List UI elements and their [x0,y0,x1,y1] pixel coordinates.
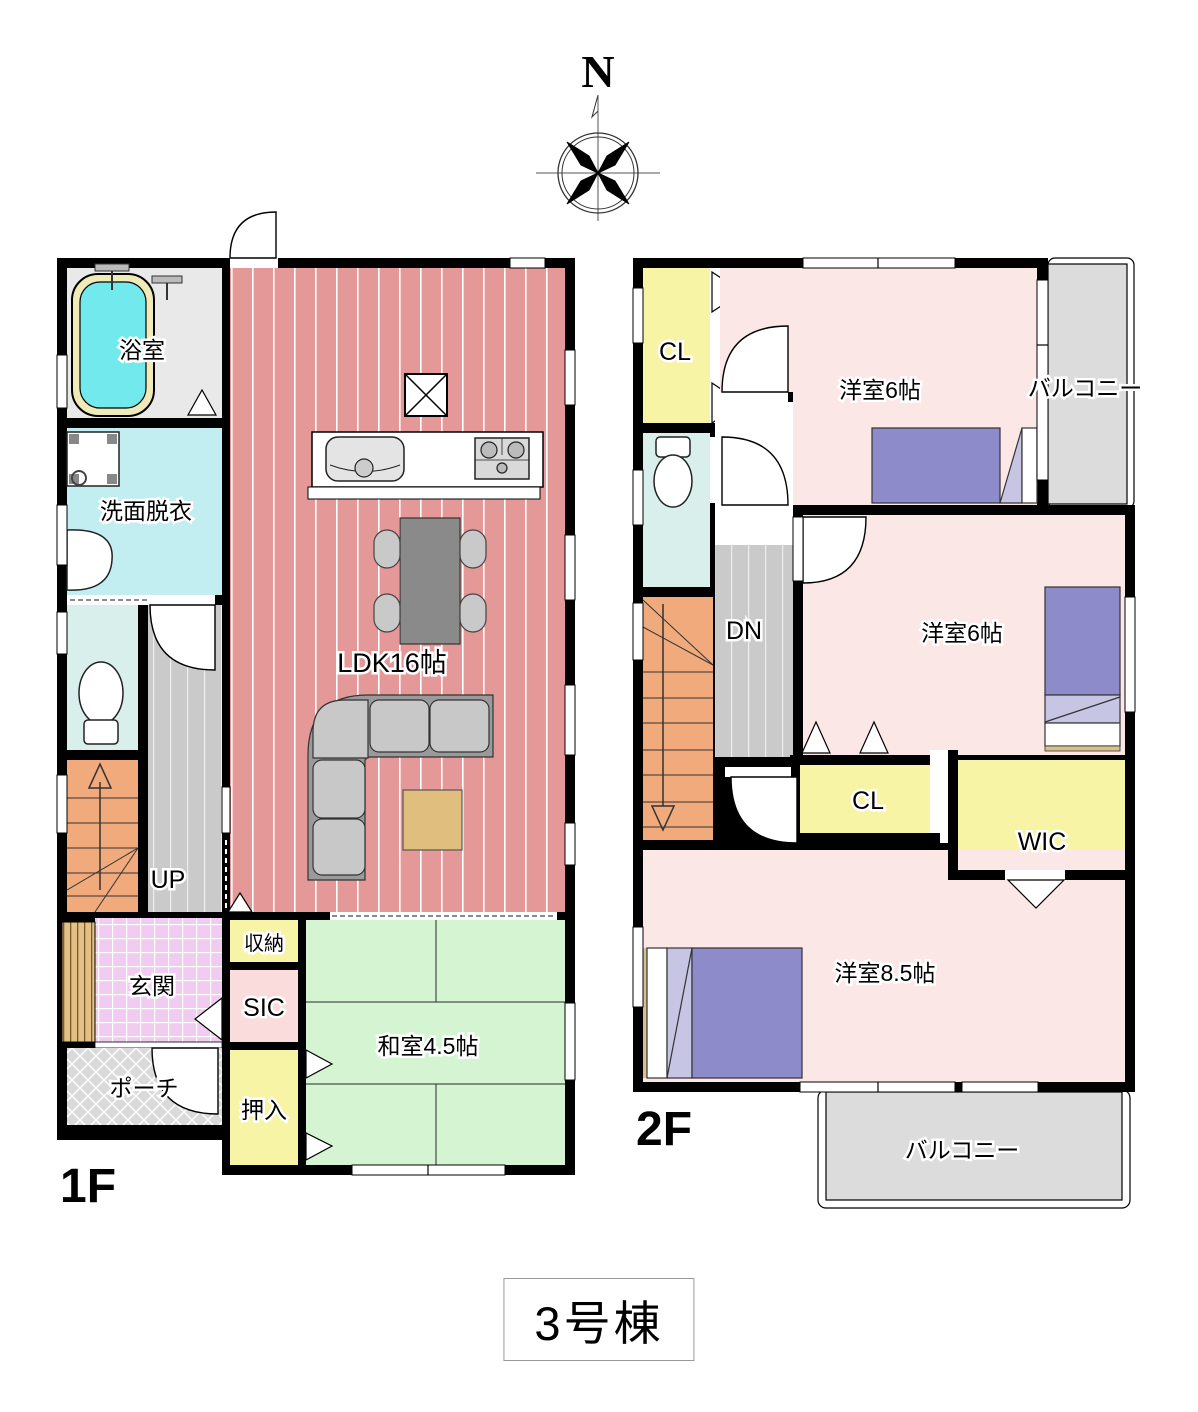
label-dn: DN [726,617,762,645]
label-tatami: 和室4.5帖 [378,1033,479,1059]
washing-machine-icon [67,432,119,486]
room-toilet1 [67,605,138,750]
room-ldk [228,212,565,920]
toilet-icon [654,437,692,507]
room-toilet2 [643,433,710,587]
stairs-up [67,760,138,912]
label-wic: WIC [1018,828,1067,856]
floor2-plan: CL 洋室6帖 バルコニー DN 洋室6帖 CL WIC 洋室8.5帖 バルコニ… [615,200,1198,1220]
bed [1045,587,1120,751]
label-bedroom2: 洋室6帖 [921,620,1003,646]
building-title: 3号棟 [503,1278,694,1361]
label-bedroom1: 洋室6帖 [839,377,921,403]
compass-icon: N [528,45,668,225]
label-storage: 収納 [244,932,284,955]
dining-table [400,518,460,644]
label-balcony2: バルコニー [905,1137,1020,1163]
living-table [403,790,462,850]
label-bedroom3: 洋室8.5帖 [835,960,936,986]
label-floor1: 1F [60,1160,116,1213]
label-sic: SIC [243,994,285,1022]
label-oshiire: 押入 [241,1097,287,1123]
kitchen-counter [308,432,543,499]
shoe-cabinet [62,922,95,1042]
label-closet2: CL [852,787,884,815]
label-bath: 浴室 [119,337,165,363]
label-genkan: 玄関 [129,973,175,999]
faucet-icon [95,264,129,271]
label-balcony1: バルコニー [1028,375,1143,401]
shower-icon [152,276,182,283]
refrigerator-space-icon [405,374,447,416]
label-porch: ポーチ [110,1075,179,1101]
stairs-down [643,597,713,840]
floor1-plan: 浴室 洗面脱衣 LDK16帖 UP 収納 SIC 玄関 ポーチ 和室4.5帖 押… [50,200,590,1220]
label-ldk: LDK16帖 [337,648,447,678]
label-up: UP [151,866,186,894]
label-washroom: 洗面脱衣 [100,498,192,524]
toilet-icon [79,662,123,744]
label-closet1: CL [659,338,691,366]
stove-icon [475,438,529,479]
compass-north-label: N [581,46,614,97]
floor-plan-page: N [0,0,1198,1412]
front-door-arc [230,212,276,258]
hallway2 [710,326,793,757]
label-floor2: 2F [636,1103,692,1156]
bed [643,948,802,1078]
hallway1 [148,595,222,912]
